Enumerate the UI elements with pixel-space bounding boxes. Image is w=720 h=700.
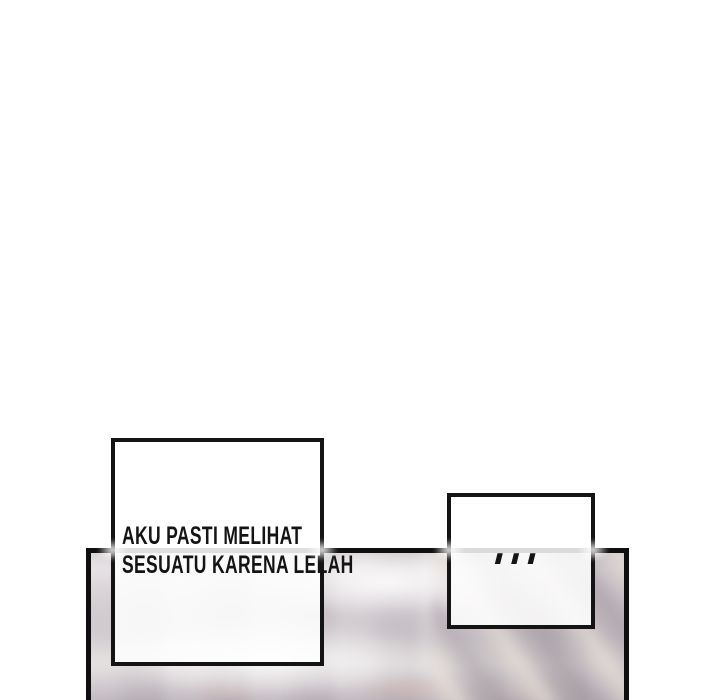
speech-box: AKU PASTI MELIHAT SESUATU KARENA LELAH [111, 438, 324, 666]
ellipsis-box: ... [447, 493, 595, 629]
speech-text: AKU PASTI MELIHAT SESUATU KARENA LELAH [122, 522, 354, 580]
speech-line-1: AKU PASTI MELIHAT [122, 522, 354, 551]
comic-page[interactable]: AKU PASTI MELIHAT SESUATU KARENA LELAH .… [0, 0, 720, 700]
ellipsis-text: ... [489, 519, 552, 576]
speech-line-2: SESUATU KARENA LELAH [122, 551, 354, 580]
